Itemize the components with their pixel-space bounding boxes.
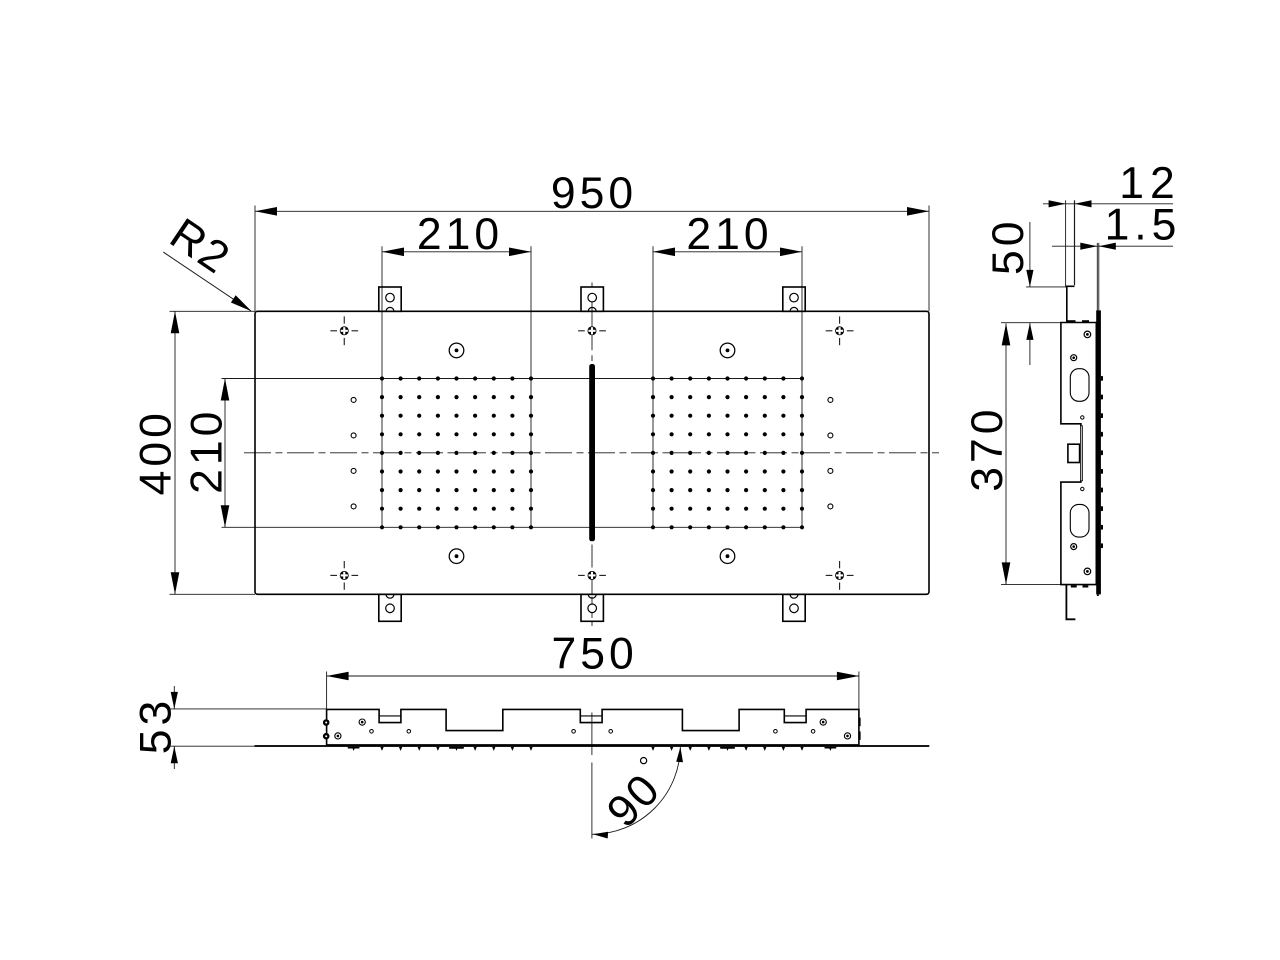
svg-text:210: 210 [686, 210, 772, 259]
svg-text:1.5: 1.5 [1105, 201, 1182, 250]
svg-text:50: 50 [984, 218, 1033, 275]
svg-text:750: 750 [551, 630, 637, 679]
svg-text:950: 950 [551, 169, 637, 218]
svg-text:370: 370 [963, 405, 1012, 491]
svg-text:210: 210 [417, 210, 503, 259]
svg-text:400: 400 [132, 409, 181, 495]
svg-text:210: 210 [183, 408, 232, 494]
svg-text:53: 53 [132, 697, 181, 755]
